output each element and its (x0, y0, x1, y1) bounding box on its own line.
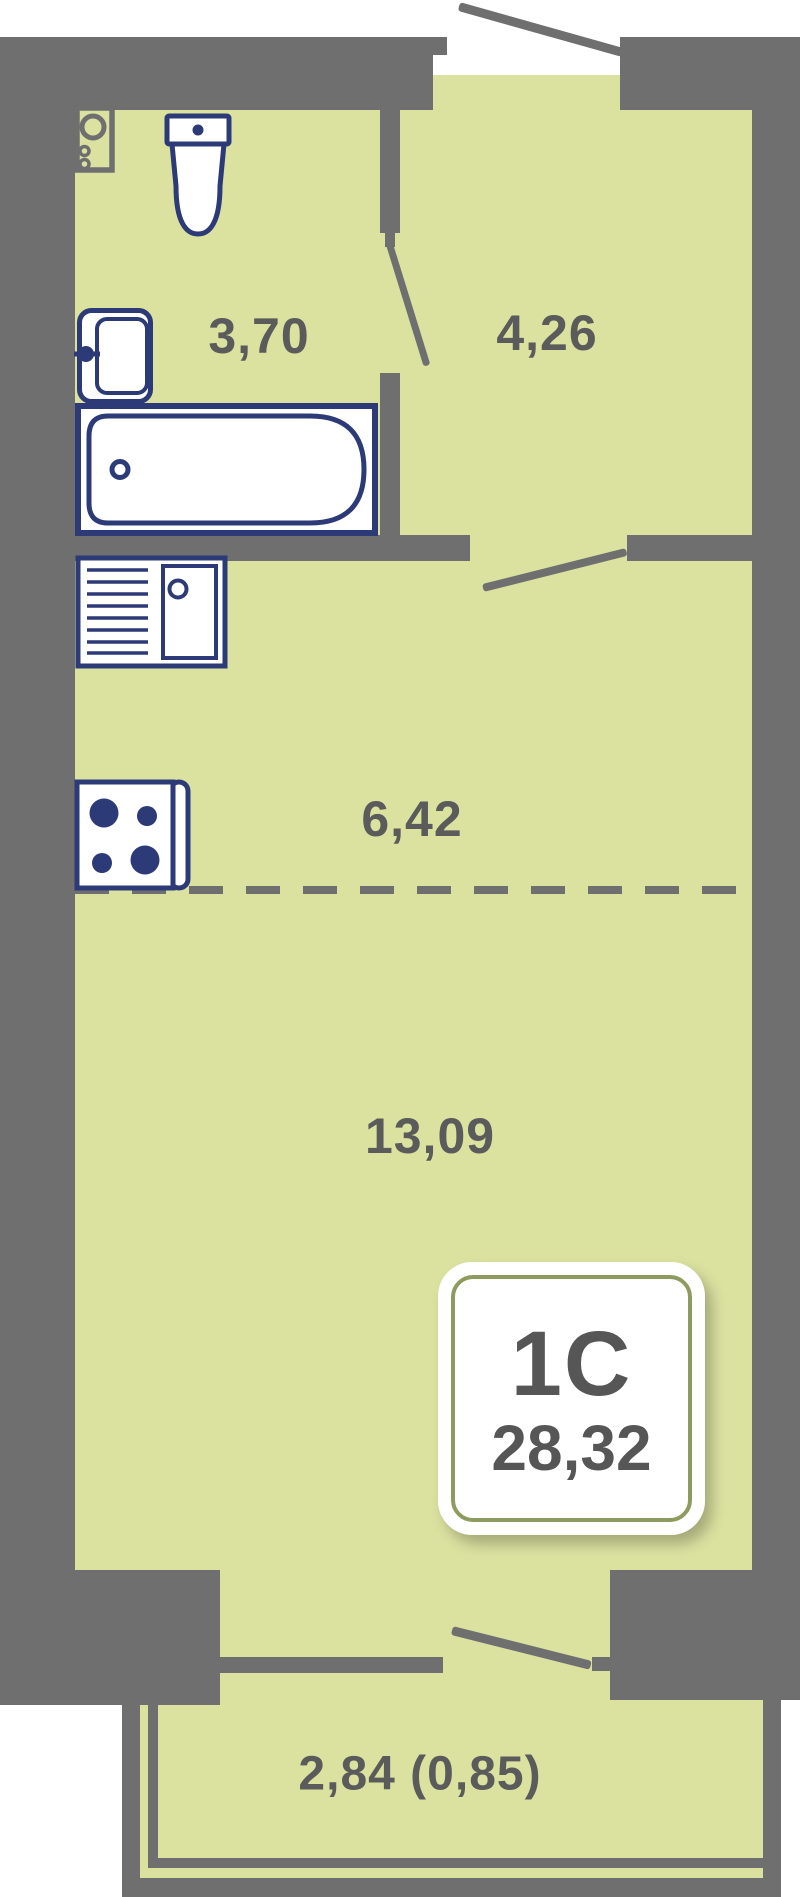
stove-icon (74, 779, 194, 891)
room-label-balcony: 2,84 (0,85) (298, 1747, 541, 1802)
unit-total-area: 28,32 (491, 1416, 651, 1480)
vent-shaft-icon (74, 105, 116, 175)
bathtub-icon (75, 403, 378, 536)
room-label-bathroom: 3,70 (208, 307, 309, 365)
unit-badge: 1С 28,32 (438, 1262, 705, 1535)
wall-left (0, 37, 75, 1570)
balcony-railing-left (148, 1705, 158, 1868)
wall-bottom-right-block (610, 1570, 800, 1700)
room-label-hallway: 4,26 (496, 304, 597, 362)
kitchen-sink-icon (75, 555, 228, 669)
balcony-wall-left (122, 1705, 140, 1897)
balcony-railing-bottom (148, 1858, 763, 1868)
room-label-kitchen: 6,42 (361, 790, 462, 848)
entrance-door-swing (458, 2, 624, 57)
wall-right (752, 37, 800, 1570)
wall-top-left-tab (433, 37, 447, 55)
wall-bathroom-partition-lower (380, 373, 400, 543)
room-label-living-room: 13,09 (365, 1107, 495, 1165)
balcony-wall-right (763, 1700, 781, 1897)
floor-plan: 3,70 4,26 6,42 13,09 2,84 (0,85) 1С 28,3… (0, 0, 800, 1897)
wall-kitchen-right (627, 535, 752, 561)
wall-bottom-band (220, 1657, 443, 1673)
wall-bathroom-partition-upper (380, 110, 400, 233)
washbasin-icon (74, 308, 154, 404)
balcony-door-stub (592, 1657, 610, 1671)
balcony-wall-bottom (122, 1878, 781, 1897)
wall-bottom-left-block (0, 1570, 220, 1705)
unit-type-label: 1С (511, 1318, 633, 1410)
toilet-icon (164, 113, 232, 239)
